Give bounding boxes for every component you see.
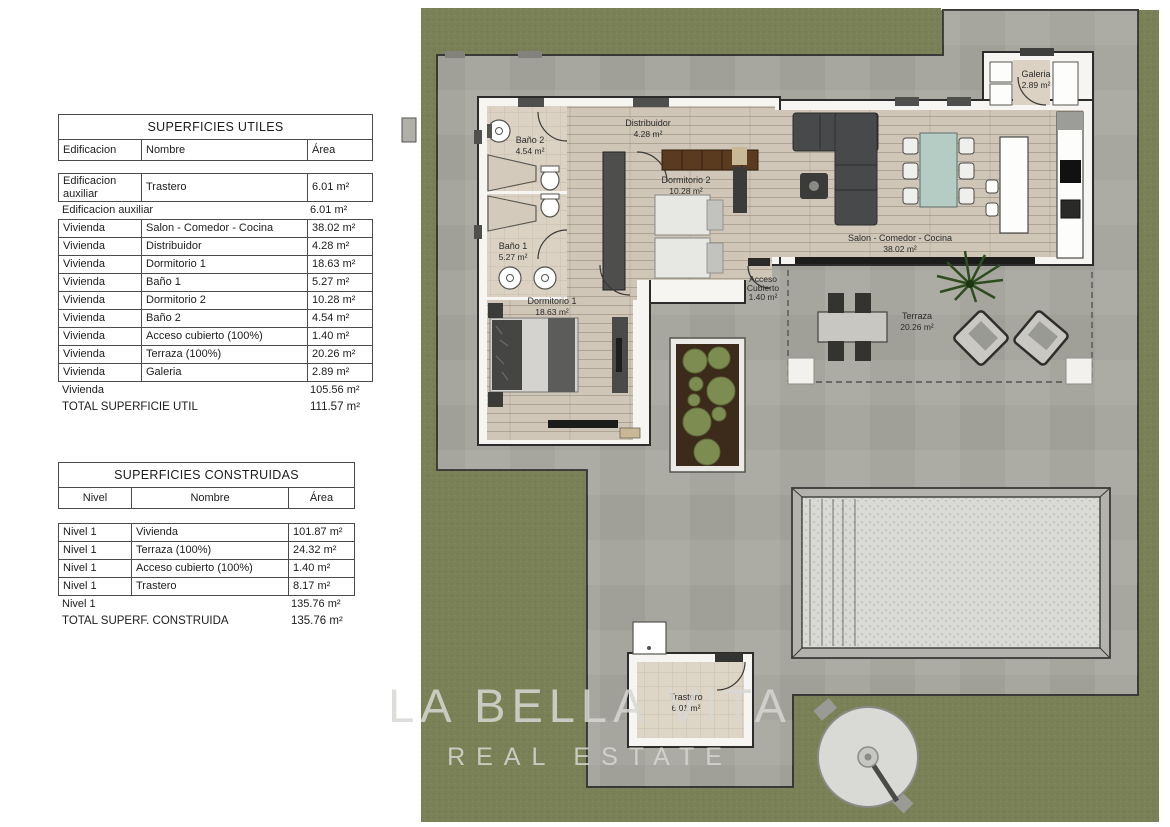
- sink: [1061, 200, 1080, 218]
- chair: [959, 138, 974, 154]
- washbasin-tap: [487, 124, 492, 138]
- subtotal-value: 6.01 m²: [306, 204, 351, 217]
- subtotal-label: Edificacion auxiliar: [58, 204, 306, 217]
- floorplan: Distribuidor 4.28 m² Baño 2 4.54 m² Baño…: [395, 0, 1170, 822]
- tv-screen: [616, 338, 622, 372]
- window: [947, 97, 971, 106]
- cell-edificacion: Edificacion auxiliar: [59, 174, 141, 201]
- label-terraza-area: 20.26 m²: [900, 322, 934, 332]
- table-row: Vivienda Baño 2 4.54 m²: [59, 309, 372, 327]
- nightstand: [488, 392, 503, 407]
- construidas-title: SUPERFICIES CONSTRUIDAS: [59, 463, 354, 488]
- pillow: [707, 243, 723, 273]
- col-header-area: Área: [307, 140, 372, 160]
- outdoor-table: [818, 312, 887, 342]
- table-superficies-construidas: SUPERFICIES CONSTRUIDAS Nivel Nombre Áre…: [58, 462, 355, 630]
- label-salon: Salon - Comedor - Cocina: [848, 233, 952, 243]
- window: [474, 225, 482, 239]
- table-row: Vivienda Acceso cubierto (100%) 1.40 m²: [59, 327, 372, 345]
- stool: [986, 180, 998, 193]
- label-bano2-area: 4.54 m²: [516, 146, 545, 156]
- bush: [707, 377, 735, 405]
- toilet-icon: [541, 197, 559, 217]
- toilet-tank: [541, 166, 559, 172]
- cooktop: [1060, 160, 1081, 183]
- chair: [855, 293, 871, 313]
- chair: [828, 341, 844, 361]
- washbasin-icon: [499, 267, 521, 289]
- headboard: [548, 318, 575, 392]
- chair: [828, 293, 844, 313]
- bush: [712, 407, 726, 421]
- utiles-group1-subtotal: Edificacion auxiliar 6.01 m²: [58, 202, 373, 219]
- chair: [903, 188, 918, 204]
- table-row: Vivienda Distribuidor 4.28 m²: [59, 237, 372, 255]
- utiles-group2-box: Vivienda Salon - Comedor - Cocina 38.02 …: [58, 219, 373, 382]
- swimming-pool: [792, 488, 1110, 658]
- kitchen-counter: [1057, 112, 1083, 258]
- utiles-header-box: SUPERFICIES UTILES Edificacion Nombre Ár…: [58, 114, 373, 161]
- label-dorm2: Dormitorio 2: [661, 175, 710, 185]
- parasol-center: [865, 754, 872, 761]
- bush: [694, 439, 720, 465]
- fence-post: [445, 51, 465, 58]
- door-step: [620, 428, 640, 438]
- window: [518, 98, 544, 107]
- pillar: [1066, 358, 1092, 384]
- utiles-group2-subtotal: Vivienda 105.56 m²: [58, 382, 373, 399]
- toilet-icon: [541, 170, 559, 190]
- table-row: Edificacion auxiliar Trastero 6.01 m²: [59, 174, 372, 201]
- hallway-planks: [567, 106, 775, 148]
- construidas-column-headers: Nivel Nombre Área: [59, 488, 354, 508]
- fence-post: [518, 51, 542, 58]
- appliance: [990, 62, 1012, 82]
- cell-area: 6.01 m²: [307, 174, 372, 201]
- label-dorm1: Dormitorio 1: [527, 296, 576, 306]
- col-header-nivel: Nivel: [59, 488, 131, 508]
- washbasin-icon: [534, 267, 556, 289]
- fridge: [1057, 112, 1083, 130]
- entry-door: [748, 258, 770, 266]
- page-margin: [941, 0, 1170, 10]
- bush: [689, 377, 703, 391]
- stool: [986, 203, 998, 216]
- label-bano1: Baño 1: [499, 241, 528, 251]
- sliding-glass-door: [795, 257, 1035, 264]
- label-dorm1-area: 18.63 m²: [535, 307, 569, 317]
- kitchen-island: [1000, 137, 1028, 233]
- chair: [959, 163, 974, 179]
- chair: [855, 341, 871, 361]
- washing-machine: [1053, 62, 1078, 105]
- table-row: Vivienda Dormitorio 1 18.63 m²: [59, 255, 372, 273]
- cell-nombre: Trastero: [141, 174, 307, 201]
- gate-marker: [402, 118, 416, 142]
- planter-box: [670, 338, 745, 472]
- storage-door: [715, 653, 743, 662]
- table-row: Vivienda Dormitorio 2 10.28 m²: [59, 291, 372, 309]
- label-distribuidor-area: 4.28 m²: [634, 129, 663, 139]
- col-header-edificacion: Edificacion: [59, 140, 141, 160]
- table-row: Nivel 1 Vivienda 101.87 m²: [59, 524, 354, 541]
- sliding-glass-door: [548, 420, 618, 428]
- table-row: Vivienda Galeria 2.89 m²: [59, 363, 372, 381]
- sofa-chaise: [835, 113, 877, 225]
- table-row: Nivel 1 Trastero 8.17 m²: [59, 577, 354, 595]
- table-row: Vivienda Terraza (100%) 20.26 m²: [59, 345, 372, 363]
- window: [474, 130, 482, 144]
- tv-stand-knob: [809, 181, 819, 191]
- label-galeria: Galeria: [1021, 69, 1050, 79]
- wardrobe: [603, 152, 625, 290]
- bush: [683, 349, 707, 373]
- bush: [688, 394, 700, 406]
- bush: [683, 408, 711, 436]
- col-header-nombre: Nombre: [141, 140, 307, 160]
- construidas-total: TOTAL SUPERF. CONSTRUIDA 135.76 m²: [58, 613, 355, 630]
- gate-handle: [647, 646, 651, 650]
- utiles-title: SUPERFICIES UTILES: [59, 115, 372, 140]
- appliance: [990, 84, 1012, 105]
- label-distribuidor: Distribuidor: [625, 118, 671, 128]
- label-terraza: Terraza: [902, 311, 932, 321]
- nightstand: [488, 303, 503, 318]
- col-header-nombre: Nombre: [131, 488, 288, 508]
- label-bano1-area: 5.27 m²: [499, 252, 528, 262]
- utiles-column-headers: Edificacion Nombre Área: [59, 140, 372, 160]
- construidas-body-box: Nivel 1 Vivienda 101.87 m² Nivel 1 Terra…: [58, 523, 355, 596]
- table-superficies-utiles: SUPERFICIES UTILES Edificacion Nombre Ár…: [58, 114, 373, 416]
- chair: [959, 188, 974, 204]
- table-row: Vivienda Baño 1 5.27 m²: [59, 273, 372, 291]
- tv-unit: [733, 167, 747, 213]
- label-trastero-area: 6.01 m²: [672, 703, 701, 713]
- toilet-tank: [541, 194, 559, 199]
- col-header-area: Área: [288, 488, 354, 508]
- bush: [708, 347, 730, 369]
- utiles-total: TOTAL SUPERFICIE UTIL 111.57 m²: [58, 399, 373, 416]
- shelf: [732, 147, 747, 165]
- construidas-header-box: SUPERFICIES CONSTRUIDAS Nivel Nombre Áre…: [58, 462, 355, 509]
- galeria-lintel: [1020, 48, 1054, 56]
- window: [895, 97, 919, 106]
- label-dorm2-area: 10.28 m²: [669, 186, 703, 196]
- single-bed: [655, 195, 710, 235]
- utiles-group1-box: Edificacion auxiliar Trastero 6.01 m²: [58, 173, 373, 202]
- label-galeria-area: 2.89 m²: [1022, 80, 1051, 90]
- dining-table: [920, 133, 957, 207]
- table-row: Nivel 1 Acceso cubierto (100%) 1.40 m²: [59, 559, 354, 577]
- pillar: [788, 358, 814, 384]
- label-salon-area: 38.02 m²: [883, 244, 917, 254]
- single-bed: [655, 238, 710, 278]
- construidas-subtotal: Nivel 1 135.76 m²: [58, 596, 355, 613]
- label-bano2: Baño 2: [516, 135, 545, 145]
- chair: [903, 163, 918, 179]
- table-row: Vivienda Salon - Comedor - Cocina 38.02 …: [59, 220, 372, 237]
- pool-texture: [802, 497, 1100, 648]
- label-trastero: Trastero: [669, 692, 702, 702]
- table-row: Nivel 1 Terraza (100%) 24.32 m²: [59, 541, 354, 559]
- label-acceso-area: 1.40 m²: [749, 292, 778, 302]
- chair: [903, 138, 918, 154]
- pillow: [707, 200, 723, 230]
- window: [633, 98, 669, 107]
